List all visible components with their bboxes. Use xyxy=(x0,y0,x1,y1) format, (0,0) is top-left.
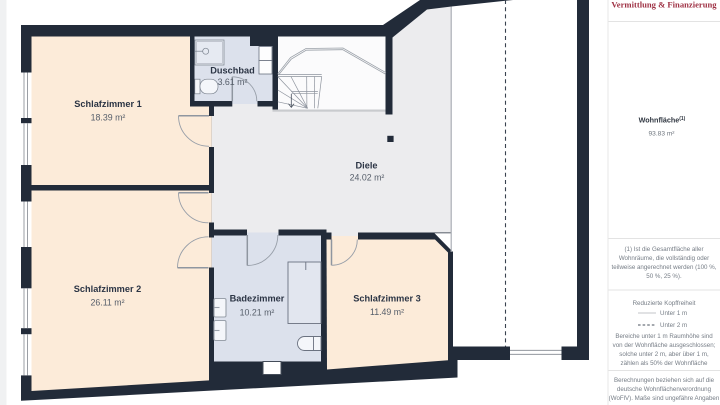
svg-text:93.83 m²: 93.83 m² xyxy=(648,131,675,138)
svg-text:26.11 m²: 26.11 m² xyxy=(90,298,124,308)
svg-text:3.61 m²: 3.61 m² xyxy=(218,77,248,87)
svg-text:Badezimmer: Badezimmer xyxy=(230,294,285,304)
svg-text:18.39 m²: 18.39 m² xyxy=(91,113,126,123)
svg-text:11.49 m²: 11.49 m² xyxy=(370,307,404,317)
svg-text:Vermittlung & Finanzierung: Vermittlung & Finanzierung xyxy=(611,0,717,10)
svg-text:Schlafzimmer 2: Schlafzimmer 2 xyxy=(74,284,141,294)
svg-text:Wohnfläche(1): Wohnfläche(1) xyxy=(639,116,686,125)
svg-text:Duschbad: Duschbad xyxy=(210,66,254,76)
svg-text:10.21 m²: 10.21 m² xyxy=(240,308,275,318)
svg-text:Schlafzimmer 1: Schlafzimmer 1 xyxy=(74,99,141,109)
svg-text:24.02 m²: 24.02 m² xyxy=(350,173,385,183)
svg-text:Schlafzimmer 3: Schlafzimmer 3 xyxy=(353,294,420,304)
svg-text:Diele: Diele xyxy=(356,161,378,171)
